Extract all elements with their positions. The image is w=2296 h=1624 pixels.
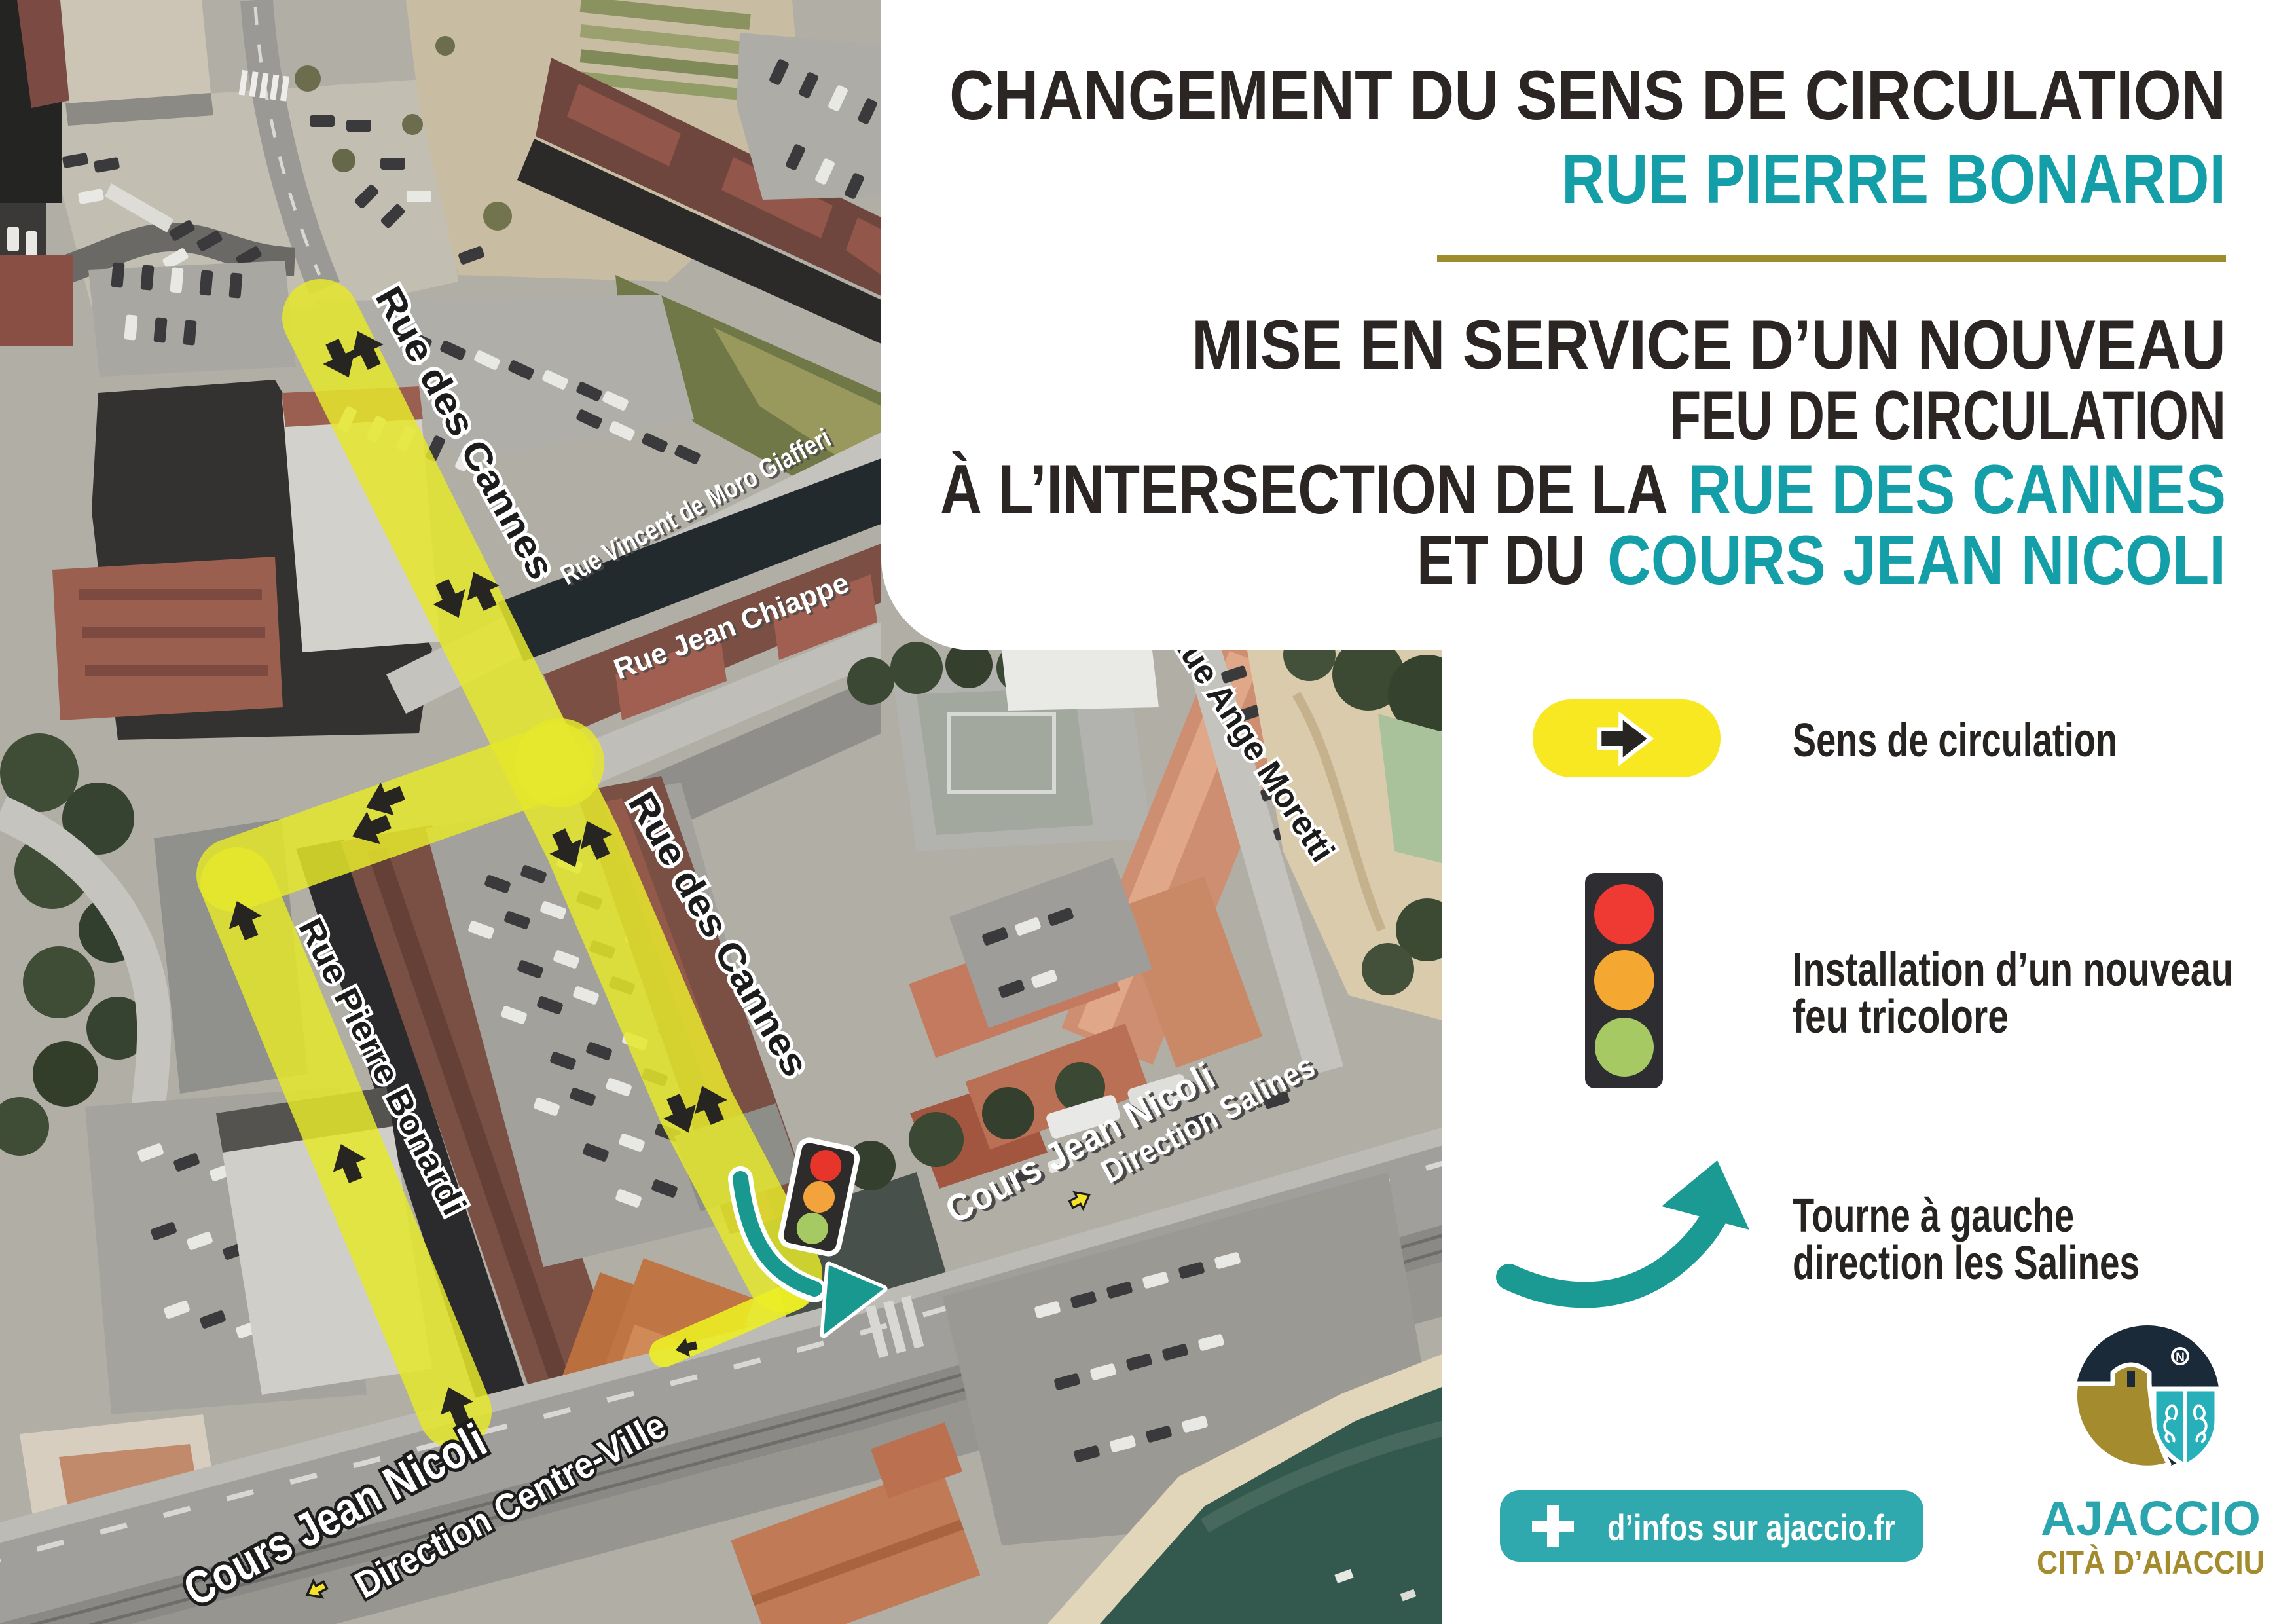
svg-text:MISE EN SERVICE D’UN NOUVEAU: MISE EN SERVICE D’UN NOUVEAU	[1192, 305, 2226, 384]
svg-text:RUE PIERRE BONARDI: RUE PIERRE BONARDI	[1561, 139, 2226, 218]
svg-text:COURS JEAN NICOLI: COURS JEAN NICOLI	[1607, 521, 2226, 599]
svg-text:N: N	[2176, 1351, 2185, 1365]
svg-text:FEU DE CIRCULATION: FEU DE CIRCULATION	[1669, 376, 2226, 454]
svg-text:AJACCIO: AJACCIO	[2041, 1491, 2261, 1545]
svg-text:Installation d’un nouveau: Installation d’un nouveau	[1793, 944, 2233, 996]
svg-text:Sens de circulation: Sens de circulation	[1793, 714, 2117, 767]
svg-text:RUE DES CANNES: RUE DES CANNES	[1688, 450, 2226, 528]
svg-text:feu tricolore: feu tricolore	[1793, 991, 2009, 1043]
svg-text:ET DU: ET DU	[1417, 521, 1586, 599]
svg-text:CITÀ D’AIACCIU: CITÀ D’AIACCIU	[2037, 1544, 2265, 1581]
svg-text:d’infos sur ajaccio.fr: d’infos sur ajaccio.fr	[1607, 1507, 1895, 1548]
svg-text:À L’INTERSECTION DE LA: À L’INTERSECTION DE LA	[940, 450, 1668, 528]
svg-text:direction les Salines: direction les Salines	[1793, 1237, 2140, 1289]
svg-text:CHANGEMENT DU SENS DE CIRCULAT: CHANGEMENT DU SENS DE CIRCULATION	[949, 56, 2226, 134]
svg-text:Tourne à gauche: Tourne à gauche	[1793, 1190, 2074, 1242]
